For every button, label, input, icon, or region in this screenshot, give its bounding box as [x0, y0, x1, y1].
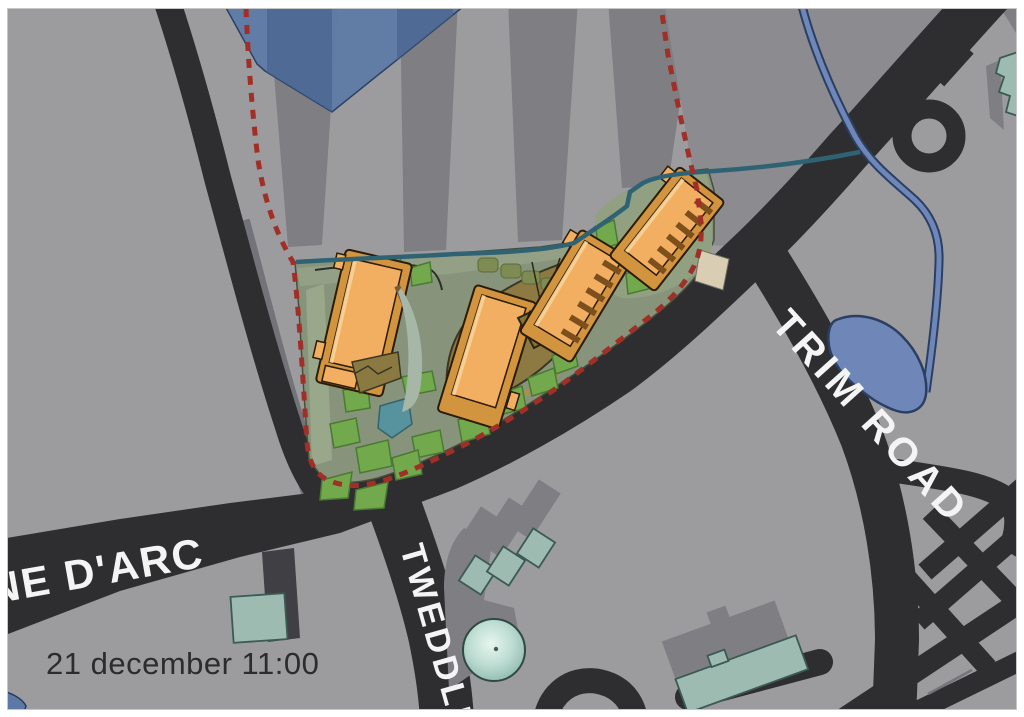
timestamp-label: 21 december 11:00	[46, 646, 319, 681]
water-tower-tip	[494, 647, 498, 651]
southwest-building	[230, 593, 287, 643]
site-plan-shadow-study-map: NE D'ARC TRIM ROAD TWEDDLE 21 december 1…	[0, 0, 1024, 717]
map-canvas: NE D'ARC TRIM ROAD TWEDDLE 21 december 1…	[0, 0, 1024, 717]
water-tower	[463, 619, 525, 681]
